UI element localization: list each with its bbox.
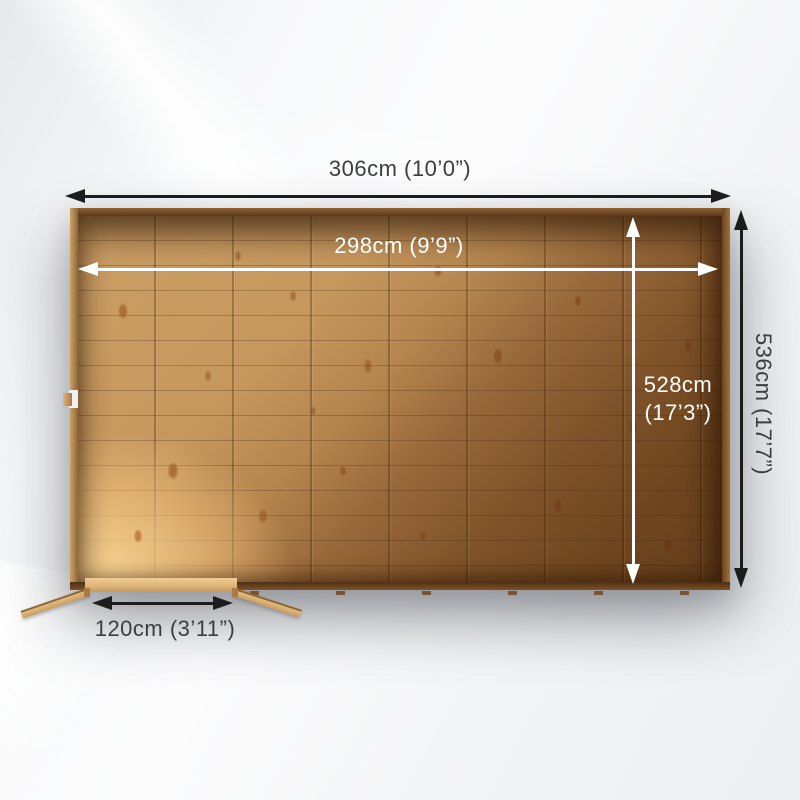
arrowhead-right-icon: [698, 262, 718, 276]
page: { "diagram": { "type": "shed-floor-plan-…: [0, 0, 800, 800]
door-width-line: [110, 602, 215, 605]
outer-width-line: [83, 195, 717, 198]
arrowhead-down-icon: [626, 564, 640, 584]
arrowhead-right-icon: [213, 596, 233, 610]
arrowhead-up-icon: [734, 210, 748, 230]
outer-width-label: 306cm (10’0”): [70, 156, 730, 182]
inner-width-label: 298cm (9’9”): [78, 233, 720, 259]
arrowhead-left-icon: [92, 596, 112, 610]
floor-bearers: [250, 591, 720, 595]
inner-depth-value: 528cm: [633, 371, 723, 399]
arrowhead-right-icon: [711, 189, 731, 203]
wall-right: [722, 208, 730, 590]
inner-depth-imperial: (17’3”): [633, 399, 723, 427]
wall-top: [70, 208, 730, 216]
left-wall-joint-batten: [63, 393, 72, 406]
shed-floor-plan: [70, 208, 730, 590]
outer-depth-line: [740, 228, 743, 568]
arrowhead-left-icon: [65, 189, 85, 203]
inner-depth-label: 528cm (17’3”): [633, 371, 723, 427]
inner-width-line: [96, 268, 702, 271]
arrowhead-left-icon: [78, 262, 98, 276]
door-width-label: 120cm (3’11”): [70, 616, 260, 642]
arrowhead-down-icon: [734, 568, 748, 588]
arrowhead-up-icon: [626, 217, 640, 237]
door-opening: [85, 578, 237, 592]
outer-depth-label: 536cm (17’7”): [750, 333, 776, 475]
door-hinge-left: [84, 588, 90, 597]
